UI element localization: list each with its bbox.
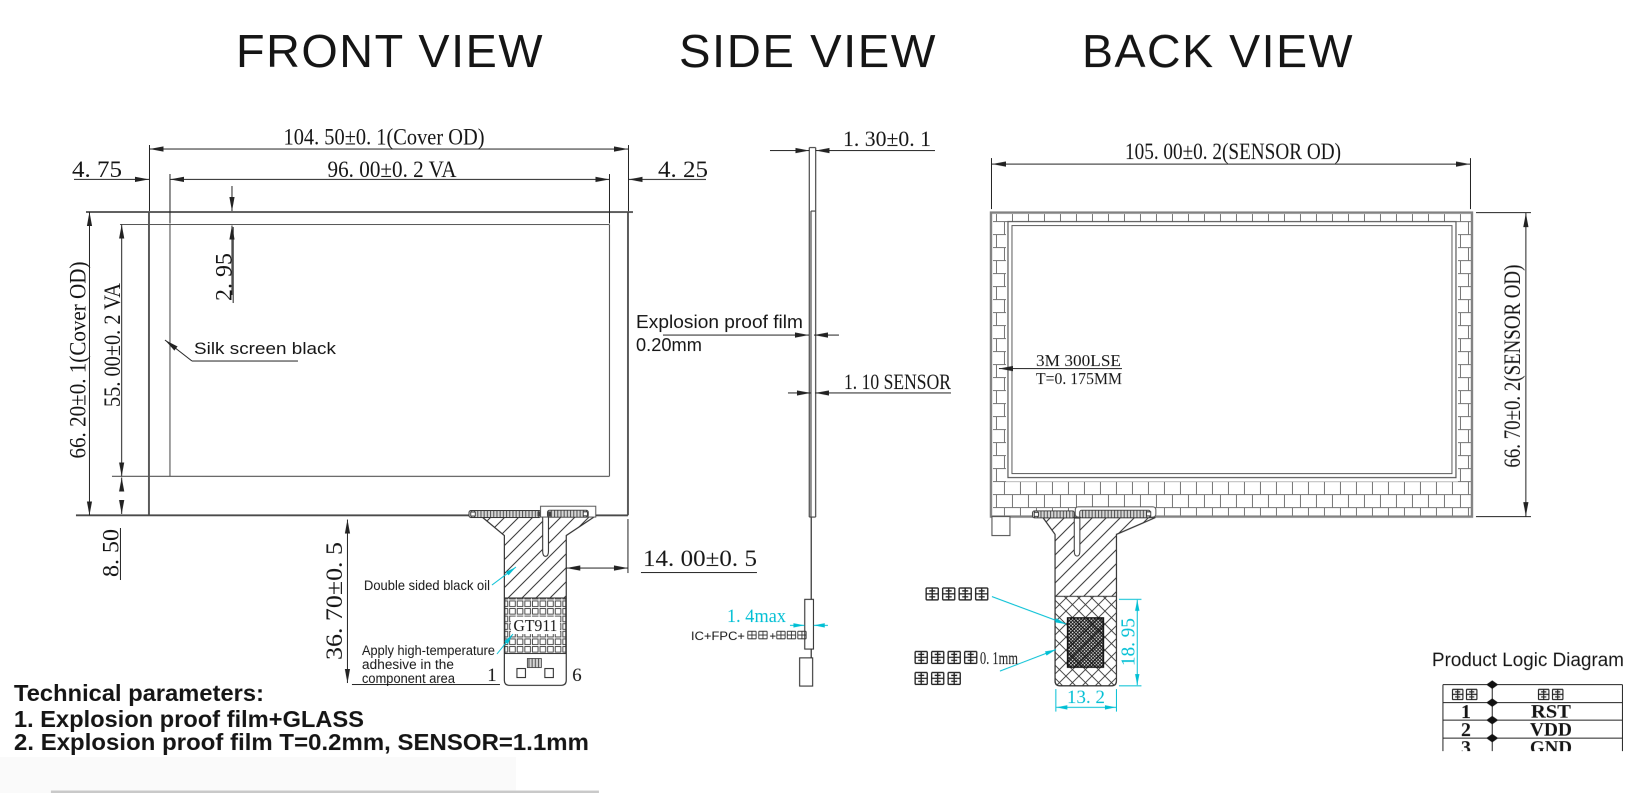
- svg-text:+: +: [769, 631, 776, 643]
- svg-text:3M 300LSE: 3M 300LSE: [1036, 351, 1121, 370]
- svg-text:96. 00±0. 2 VA: 96. 00±0. 2 VA: [327, 157, 456, 182]
- svg-text:Apply high-temperature: Apply high-temperature: [362, 643, 495, 658]
- svg-text:0.20mm: 0.20mm: [636, 335, 702, 355]
- svg-text:T=0. 175MM: T=0. 175MM: [1036, 369, 1122, 388]
- svg-text:104. 50±0. 1(Cover OD): 104. 50±0. 1(Cover OD): [283, 125, 484, 150]
- svg-text:4. 75: 4. 75: [72, 157, 122, 182]
- svg-text:Explosion proof film: Explosion proof film: [636, 312, 803, 332]
- svg-text:4. 25: 4. 25: [658, 157, 708, 182]
- svg-text:105. 00±0. 2(SENSOR OD): 105. 00±0. 2(SENSOR OD): [1125, 139, 1341, 164]
- svg-text:13. 2: 13. 2: [1067, 687, 1105, 708]
- svg-text:Technical parameters:: Technical parameters:: [14, 680, 264, 706]
- svg-text:Product Logic Diagram: Product Logic Diagram: [1432, 650, 1624, 671]
- svg-text:SIDE VIEW: SIDE VIEW: [679, 25, 937, 77]
- svg-text:Double sided black oil: Double sided black oil: [364, 577, 490, 593]
- svg-text:GT911: GT911: [513, 616, 557, 635]
- svg-text:1. 10 SENSOR: 1. 10 SENSOR: [844, 369, 951, 394]
- svg-text:component area: component area: [362, 671, 455, 686]
- svg-text:1. 30±0. 1: 1. 30±0. 1: [843, 126, 931, 151]
- svg-text:adhesive in the: adhesive in the: [362, 657, 454, 672]
- svg-text:6: 6: [572, 665, 582, 686]
- svg-text:18. 95: 18. 95: [1117, 618, 1139, 666]
- svg-text:2. 95: 2. 95: [211, 253, 236, 301]
- svg-text:55. 00±0. 2 VA: 55. 00±0. 2 VA: [100, 283, 125, 407]
- svg-text:14. 00±0. 5: 14. 00±0. 5: [643, 546, 757, 571]
- svg-text:IC+FPC+: IC+FPC+: [691, 631, 745, 643]
- svg-text:BACK VIEW: BACK VIEW: [1082, 25, 1354, 77]
- svg-text:66. 20±0. 1(Cover OD): 66. 20±0. 1(Cover OD): [65, 262, 90, 459]
- svg-text:Silk screen black: Silk screen black: [194, 339, 337, 358]
- svg-text:36. 70±0. 5: 36. 70±0. 5: [322, 542, 347, 660]
- svg-text:8. 50: 8. 50: [98, 529, 123, 577]
- svg-text:0. 1mm: 0. 1mm: [980, 648, 1018, 668]
- svg-text:1: 1: [487, 665, 497, 686]
- svg-text:66. 70±0. 2(SENSOR OD): 66. 70±0. 2(SENSOR OD): [1500, 265, 1525, 468]
- svg-text:FRONT VIEW: FRONT VIEW: [236, 25, 544, 77]
- svg-text:1. 4max: 1. 4max: [727, 606, 786, 627]
- svg-text:2. Explosion proof film T=0.2m: 2. Explosion proof film T=0.2mm, SENSOR=…: [14, 729, 589, 755]
